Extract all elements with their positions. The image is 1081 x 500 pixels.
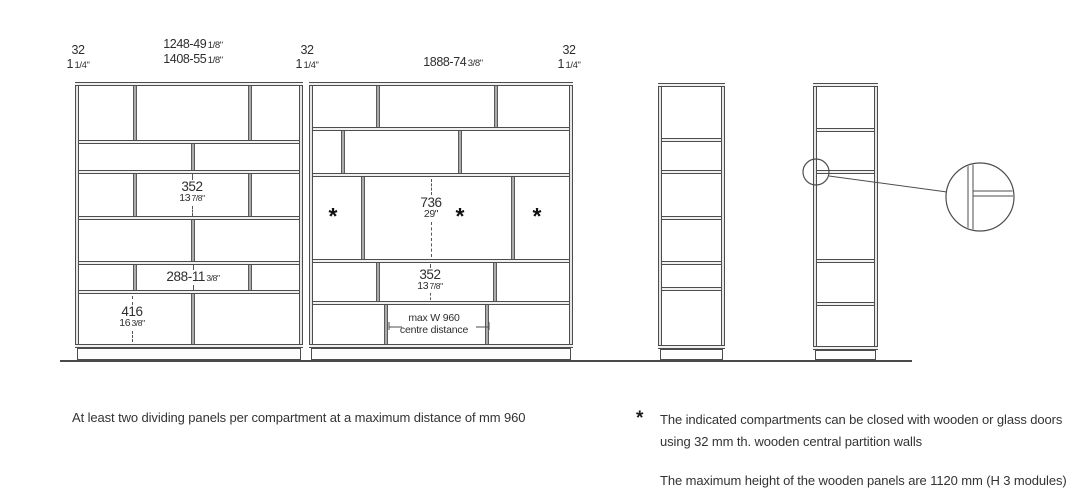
dimension-dash-line: [431, 222, 432, 257]
dimension-dash-line: [430, 293, 431, 300]
top-dimension-label: 321 1/4": [295, 44, 318, 72]
shelf: [313, 259, 569, 263]
dim-text-line: 1248-49 1/8": [163, 38, 223, 53]
shelf: [79, 261, 299, 265]
dim-text-line: 13 7/8": [179, 193, 204, 204]
divider-panel: [376, 86, 380, 127]
dim-416: 41616 3/8": [116, 305, 147, 329]
divider-panel: [133, 265, 137, 290]
note-line-2: using 32 mm th. wooden central partition…: [660, 431, 1062, 453]
compartment-asterisk: *: [456, 203, 465, 229]
dim-text-main: 13: [417, 280, 428, 292]
plinth: [815, 350, 876, 360]
dim-text-main: 1248-49: [163, 37, 206, 51]
dim-text-main: 1888-74: [423, 55, 466, 69]
dim-text-main: 1408-55: [163, 52, 206, 66]
dim-text-line: 16 3/8": [119, 318, 144, 329]
dimension-dash-line: [192, 206, 193, 216]
shelf: [817, 302, 874, 306]
dim-352-left: 35213 7/8": [176, 180, 207, 204]
divider-panel: [133, 174, 137, 216]
side-panel-right: [569, 82, 573, 348]
dim-736: 73629": [417, 196, 444, 220]
divider-panel: [376, 263, 380, 301]
spec-sheet-canvas: 321 1/4"1248-49 1/8"1408-55 1/8"321 1/4"…: [0, 0, 1081, 500]
top-panel: [813, 83, 878, 87]
divider-panel: [458, 131, 462, 173]
divider-panel: [248, 86, 252, 140]
side-panel-right: [721, 83, 725, 349]
shelf: [79, 140, 299, 144]
shelf: [662, 261, 721, 265]
dim-text-fraction: 1/8": [206, 55, 222, 66]
top-dimension-label: 321 1/4": [66, 44, 89, 72]
divider-panel: [133, 86, 137, 140]
dim-text-fraction: 1/4": [73, 60, 89, 71]
note-max-height: The maximum height of the wooden panels …: [660, 473, 1067, 488]
side-panel-left: [75, 82, 79, 348]
dim-text-line: 1 1/4": [557, 58, 580, 73]
shelf: [662, 216, 721, 220]
divider-panel: [191, 144, 195, 170]
divider-panel: [493, 263, 497, 301]
top-panel: [658, 83, 725, 87]
divider-panel: [494, 86, 498, 127]
divider-panel: [191, 220, 195, 261]
dim-text-line: 1888-74 3/8": [423, 56, 483, 71]
divider-panel: [191, 294, 195, 344]
shelf: [313, 301, 569, 305]
dim-352-right: 35213 7/8": [414, 268, 445, 292]
dim-text-fraction: 1/4": [564, 60, 580, 71]
dim-text-line: 288-11 3/8": [166, 270, 219, 285]
shelf: [817, 259, 874, 263]
dim-text-line: 1 1/4": [66, 58, 89, 73]
divider-panel: [485, 305, 489, 344]
dim-text-fraction: 1/4": [302, 60, 318, 71]
dim-text-main: 32: [300, 43, 313, 57]
side-panel-right: [874, 83, 878, 350]
label-max-w: max W 960centre distance: [397, 313, 471, 336]
note-dividing-panels: At least two dividing panels per compart…: [72, 410, 525, 425]
shelf: [817, 170, 874, 174]
side-unit-2: [813, 83, 878, 350]
dim-text-fraction: 1/8": [206, 40, 222, 51]
dim-text-line: 13 7/8": [417, 281, 442, 292]
dim-text-line: 32: [295, 44, 318, 58]
top-dimension-label: 1248-49 1/8"1408-55 1/8": [163, 38, 223, 67]
divider-panel: [248, 265, 252, 290]
dim-text-fraction: 3/8": [466, 58, 482, 69]
dim-text-fraction: 3/8": [205, 273, 220, 283]
compartment-asterisk: *: [533, 203, 542, 229]
top-dimension-label: 321 1/4": [557, 44, 580, 72]
front-unit-left: [75, 82, 303, 348]
dim-text-line: 1408-55 1/8": [163, 53, 223, 68]
dim-text-main: 32: [71, 43, 84, 57]
divider-panel: [248, 174, 252, 216]
dim-text-line: 32: [557, 44, 580, 58]
note-line-1: The indicated compartments can be closed…: [660, 409, 1062, 431]
dim-text-main: 16: [119, 317, 130, 329]
shelf: [79, 290, 299, 294]
dim-text-main: 32: [562, 43, 575, 57]
dim-text-line: 1 1/4": [295, 58, 318, 73]
dim-text-fraction: 7/8": [428, 281, 443, 291]
side-panel-right: [299, 82, 303, 348]
shelf: [313, 127, 569, 131]
divider-panel: [361, 177, 365, 259]
dim-text-line: centre distance: [400, 325, 468, 337]
note-asterisk-marker: *: [636, 408, 643, 430]
dim-text-main: 29": [424, 208, 438, 220]
dim-text-fraction: 3/8": [130, 318, 145, 328]
top-panel: [309, 82, 573, 86]
plinth: [660, 349, 723, 360]
plinth: [311, 348, 571, 360]
dim-text-main: 13: [179, 192, 190, 204]
dimension-dash-line: [431, 179, 432, 195]
compartment-asterisk: *: [329, 203, 338, 229]
dim-text-line: 29": [420, 209, 441, 220]
side-panel-left: [813, 83, 817, 350]
dim-text-main: 288-11: [166, 269, 205, 284]
shelf: [662, 170, 721, 174]
shelf: [79, 170, 299, 174]
divider-panel: [384, 305, 388, 344]
shelf: [817, 128, 874, 132]
dim-text-main: max W 960: [408, 312, 459, 324]
shelf: [662, 138, 721, 142]
divider-panel: [511, 177, 515, 259]
shelf: [662, 287, 721, 291]
dim-288: 288-11 3/8": [163, 270, 222, 285]
dimension-dash-line: [132, 331, 133, 342]
side-unit-1: [658, 83, 725, 349]
dim-text-fraction: 7/8": [190, 193, 205, 203]
side-panel-left: [309, 82, 313, 348]
dim-text-line: 32: [66, 44, 89, 58]
shelf: [79, 216, 299, 220]
top-panel: [75, 82, 303, 86]
note-compartment-doors: The indicated compartments can be closed…: [660, 409, 1062, 453]
shelf: [313, 173, 569, 177]
top-dimension-label: 1888-74 3/8": [423, 56, 483, 71]
dim-text-main: centre distance: [400, 324, 468, 336]
plinth: [77, 348, 301, 360]
divider-panel: [341, 131, 345, 173]
